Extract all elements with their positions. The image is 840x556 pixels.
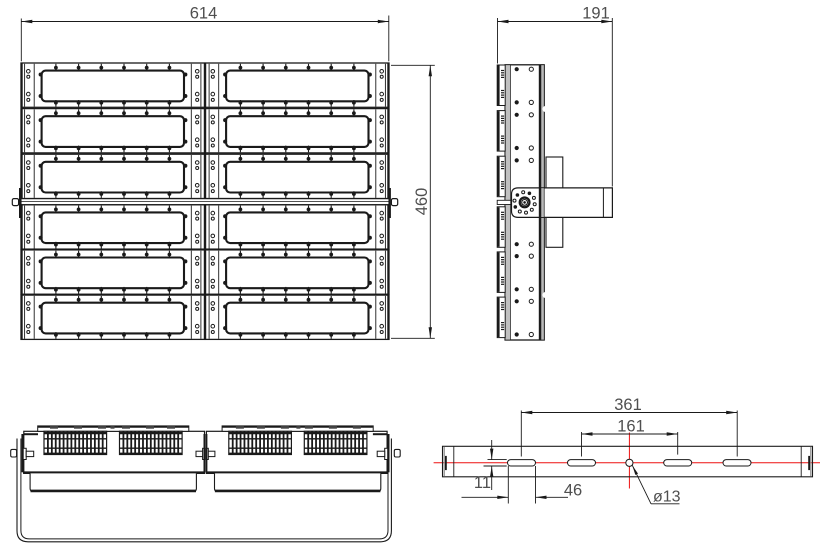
svg-text:460: 460 <box>413 188 431 216</box>
svg-text:11: 11 <box>474 474 491 492</box>
svg-text:46: 46 <box>564 482 582 500</box>
svg-text:361: 361 <box>614 396 642 414</box>
svg-text:191: 191 <box>582 5 610 23</box>
svg-text:ø13: ø13 <box>653 489 681 506</box>
svg-text:614: 614 <box>190 5 218 23</box>
svg-text:161: 161 <box>617 418 645 436</box>
